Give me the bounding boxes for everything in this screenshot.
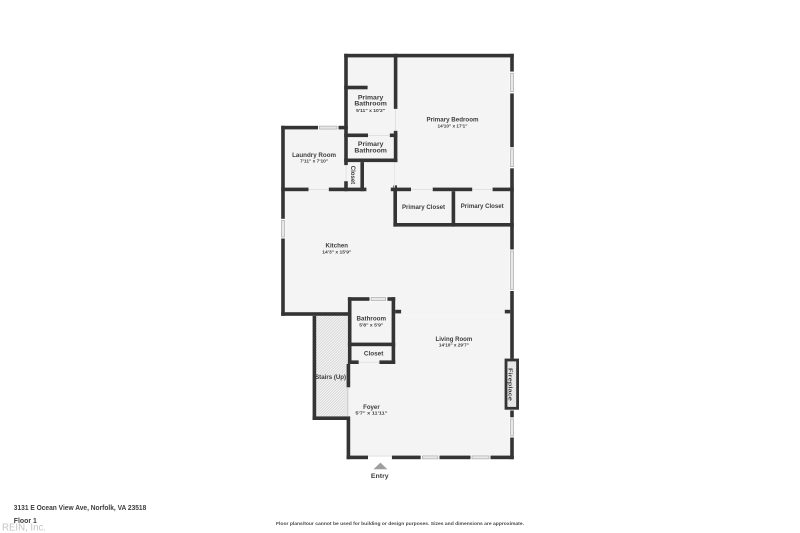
- svg-text:14'10" x 29'7": 14'10" x 29'7": [439, 343, 469, 349]
- svg-text:Stairs (Up): Stairs (Up): [315, 374, 346, 381]
- svg-text:Bathroom: Bathroom: [357, 315, 387, 322]
- svg-text:Living Room: Living Room: [436, 336, 473, 343]
- svg-text:Kitchen: Kitchen: [326, 243, 349, 250]
- svg-text:Primary Bedroom: Primary Bedroom: [427, 117, 479, 124]
- svg-text:5'7" x 11'11": 5'7" x 11'11": [355, 411, 387, 417]
- svg-text:Primary Closet: Primary Closet: [461, 203, 505, 210]
- svg-text:Bathroom: Bathroom: [354, 148, 387, 155]
- svg-text:5'11" x 10'2": 5'11" x 10'2": [356, 108, 385, 114]
- svg-text:7'11" x 7'10": 7'11" x 7'10": [300, 158, 328, 164]
- svg-text:Closet: Closet: [349, 166, 355, 185]
- svg-text:Fireplace: Fireplace: [507, 368, 513, 401]
- svg-text:Floor plans/tour cannot be use: Floor plans/tour cannot be used for buil…: [276, 521, 525, 527]
- svg-text:REIN, Inc.: REIN, Inc.: [2, 522, 46, 533]
- svg-text:3131 E Ocean View Ave, Norfolk: 3131 E Ocean View Ave, Norfolk, VA 23518: [14, 505, 147, 512]
- svg-text:14'10" x 17'1": 14'10" x 17'1": [438, 124, 468, 130]
- svg-text:14'3" x 15'9": 14'3" x 15'9": [322, 250, 351, 256]
- svg-text:Foyer: Foyer: [363, 404, 380, 411]
- svg-text:Entry: Entry: [371, 473, 389, 480]
- svg-text:Closet: Closet: [364, 351, 384, 358]
- svg-text:Bathroom: Bathroom: [354, 101, 387, 108]
- svg-text:Laundry Room: Laundry Room: [292, 152, 336, 159]
- svg-text:5'8" x 5'9": 5'8" x 5'9": [359, 323, 383, 329]
- svg-text:Primary Closet: Primary Closet: [402, 204, 446, 211]
